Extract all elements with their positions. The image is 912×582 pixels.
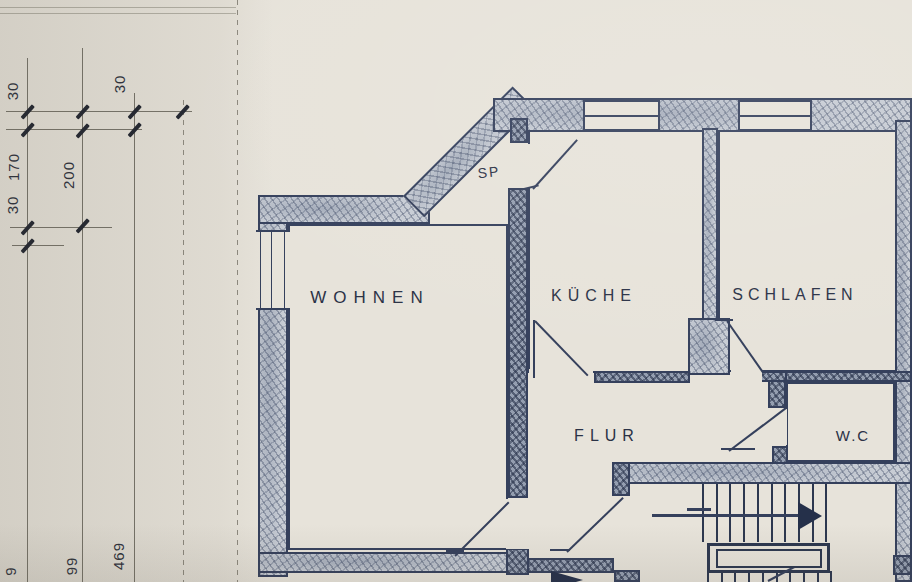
wall-exterior-northwest [258,195,430,224]
stair-tread [825,484,827,542]
dimension-line-horizontal [6,111,192,112]
wall-kueche-flur [594,371,690,383]
window-pane-line [740,115,810,117]
dimension-line-vertical-dashed [183,100,184,582]
wall-kueche-schlafen [702,128,718,323]
stair-tread [748,571,750,582]
wall-landing-stub [614,570,640,582]
door-swing-tick-schlafen [715,319,733,321]
stair-tread [707,571,709,582]
room-wohnen [288,224,508,550]
dimension-value: 99 [62,544,80,582]
wall-east-block [893,555,912,575]
stair-tread [729,484,731,542]
wall-wohnen-kueche [508,188,528,498]
dimension-value: 469 [109,534,127,578]
stair-tread [771,484,773,542]
stair-start-tick [687,508,711,511]
wall-sp-jamb [510,118,528,143]
dimension-value: 200 [59,153,77,197]
room-label-wohnen: WOHNEN [310,288,429,308]
stair-tread [716,484,718,542]
room-label-flur: FLUR [574,427,640,445]
stair-landing-rail-inner [716,549,822,568]
room-wc [786,382,895,462]
wall-stairwell-north-endcap [612,462,630,496]
room-schlafen [718,130,898,372]
door-gap-wohnen [506,499,530,549]
floor-plan-sheet: 30 170 30 200 30 9 99 469 [0,0,912,582]
window-north-kueche [583,100,660,131]
wall-exterior-east [895,120,912,582]
wall-wc-west-upper-stub [768,380,786,408]
window-north-schlafen [738,100,812,131]
dimension-line-vertical [27,58,28,582]
window-pane-line [284,232,285,308]
room-label-sp: SP [477,163,501,181]
stair-direction-arrow [798,502,822,530]
wall-wohnen-south [258,552,527,573]
margin-line [0,7,236,8]
stair-tread [721,571,723,582]
door-swing-tick-wc [721,448,755,450]
stair-tread [817,571,819,582]
room-label-wc: W.C [836,427,870,444]
dimension-line-vertical [134,93,135,582]
stair-arrow-lower-flight [551,571,583,582]
stair-tread [757,484,759,542]
stair-tread [743,484,745,542]
dimension-value: 30 [3,69,21,113]
door-swing-tick-entry [550,549,570,551]
stair-direction-line [652,514,818,517]
door-gap-schlafen [731,369,762,384]
wall-stairwell-north [612,462,912,484]
dimension-value: 30 [3,183,21,227]
stair-tread [789,571,791,582]
window-pane-line [271,232,272,308]
margin-line [0,13,236,14]
window-pane-line [585,115,658,117]
stair-tread [784,484,786,542]
window-west [256,230,290,310]
window-pane-line [260,232,261,308]
wall-exterior-north [493,98,912,132]
door-swing-tick-wohnen [446,550,464,552]
stair-tread [830,571,832,582]
room-label-kueche: KÜCHE [551,287,637,305]
stair-tread [702,484,704,542]
stair-tread [803,571,805,582]
reference-line-dashed [237,0,238,582]
door-leaf-kueche-open [533,320,535,378]
door-swing-entry [566,497,623,553]
wall-pier-chimney [688,318,730,375]
stair-tread [734,571,736,582]
dimension-value: 30 [110,62,128,106]
dimension-line-horizontal [12,245,64,246]
dimension-value: 9 [1,549,19,582]
stair-tread [762,571,764,582]
wall-junction-block [506,548,529,575]
door-gap-sp [505,144,531,188]
room-label-schlafen: SCHLAFEN [732,286,857,304]
